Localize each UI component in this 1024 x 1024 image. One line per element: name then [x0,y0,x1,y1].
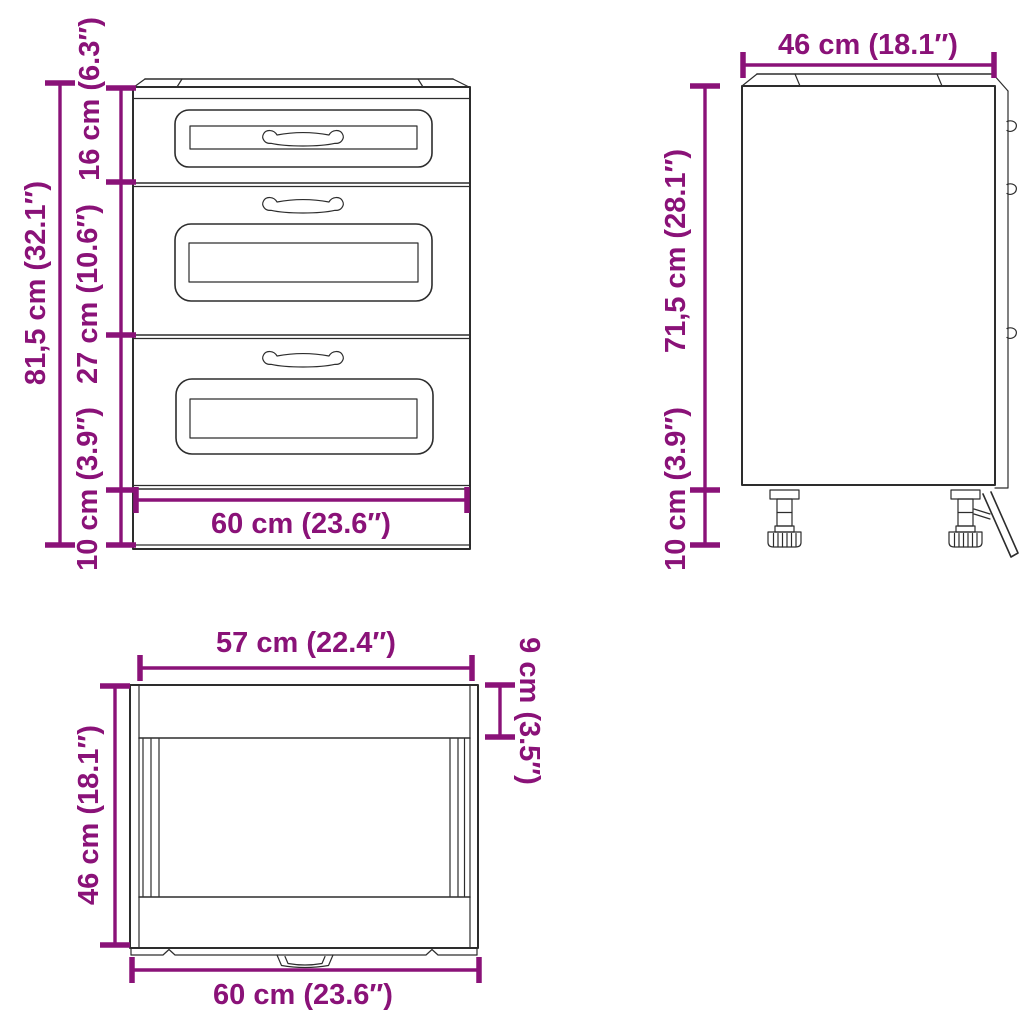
dimension-diagram-page: 81,5 cm (32.1″) 16 cm (6.3″) 27 cm (10.6… [0,0,1024,1024]
side-rear-leg [768,490,801,547]
front-width-label: 60 cm (23.6″) [211,508,391,540]
front-view-dimensions: 81,5 cm (32.1″) 16 cm (6.3″) 27 cm (10.6… [20,17,467,571]
cabinet-dimension-diagram: 81,5 cm (32.1″) 16 cm (6.3″) 27 cm (10.6… [0,0,1024,1024]
drawer3-panel-inner [190,399,417,438]
front-drawer-3 [176,352,433,454]
drawer1-handle [263,131,344,146]
side-front-panel-edge [995,91,1016,488]
side-plinth-board [983,492,1018,557]
top-front-rail-depth-label: 9 cm (3.5″) [513,637,545,785]
side-view: 46 cm (18.1″) 71,5 cm (28.1″) 10 cm (3.9… [660,29,1018,571]
front-drawer-2 [175,198,432,301]
front-carcass-outline [133,87,470,549]
top-view: 57 cm (22.4″) 46 cm (18.1″) 9 cm (3.5″) … [73,627,545,1011]
top-overall-width-label: 60 cm (23.6″) [213,979,393,1011]
side-front-leg [949,490,1018,557]
front-drawer-1 [175,110,432,167]
top-carcass-outline [130,685,478,948]
side-depth-label: 46 cm (18.1″) [778,29,958,61]
side-view-drawing [742,74,1018,557]
side-leg-height-label: 10 cm (3.9″) [660,407,692,571]
drawer3-panel [176,379,433,454]
front-total-height-label: 81,5 cm (32.1″) [20,181,52,385]
top-handle [277,955,333,968]
drawer2-handle [263,198,344,213]
front-top-drawer-height-label: 16 cm (6.3″) [74,17,106,181]
side-view-dimensions: 46 cm (18.1″) 71,5 cm (28.1″) 10 cm (3.9… [660,29,994,571]
side-carcass-height-label: 71,5 cm (28.1″) [660,149,692,353]
drawer3-handle [263,352,344,367]
front-view: 81,5 cm (32.1″) 16 cm (6.3″) 27 cm (10.6… [20,17,470,571]
front-plinth-height-label: 10 cm (3.9″) [72,407,104,571]
front-view-drawing [133,79,470,549]
drawer2-panel-inner [189,243,418,282]
top-drawer-slides-left [143,739,159,896]
side-carcass-outline [742,86,995,485]
side-countertop [742,74,1008,91]
front-middle-drawer-height-label: 27 cm (10.6″) [72,204,104,384]
top-view-drawing [130,685,478,968]
drawer2-panel [175,224,432,301]
top-inner-width-label: 57 cm (22.4″) [216,627,396,659]
front-countertop [134,79,469,87]
top-side-panels [139,685,470,948]
top-depth-label: 46 cm (18.1″) [73,725,105,905]
top-countertop-front-edge [131,948,477,955]
top-drawer-slides-right [450,739,465,896]
